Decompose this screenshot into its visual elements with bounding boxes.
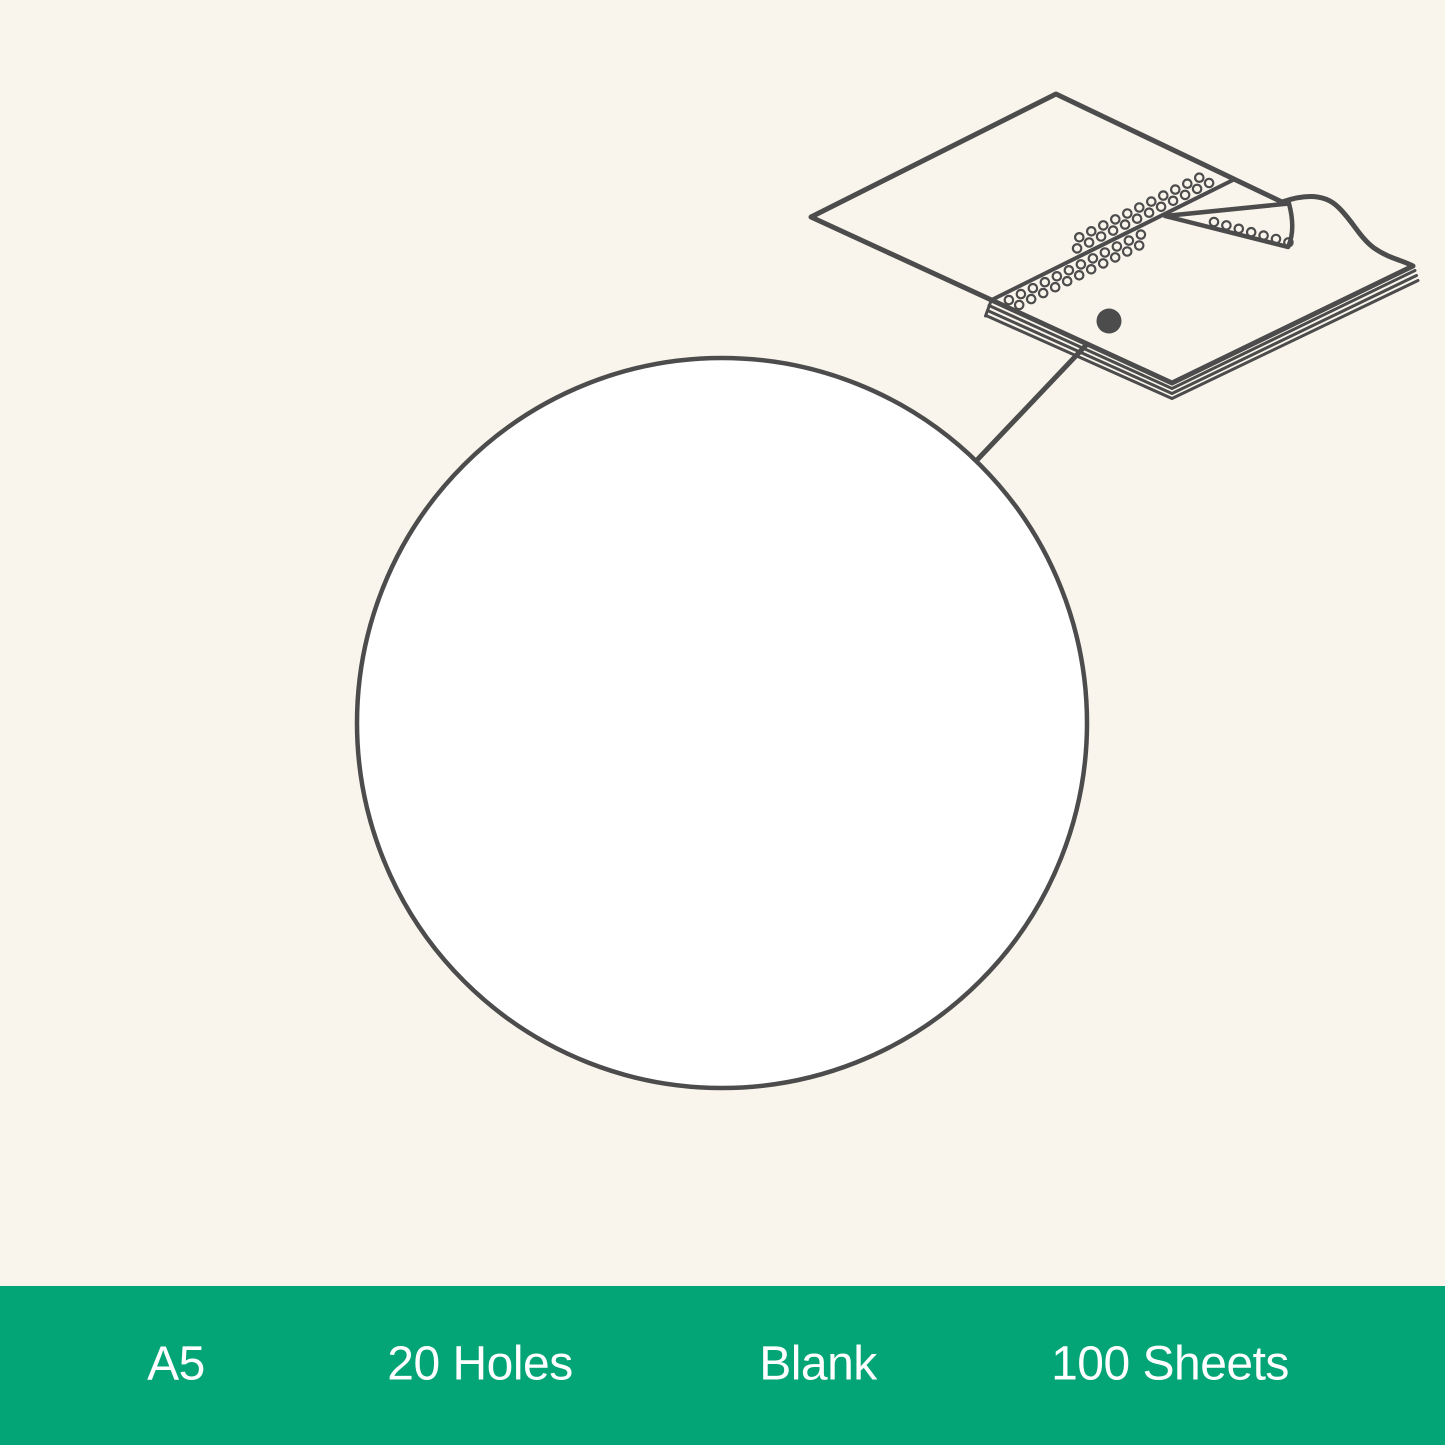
notebook-line-art xyxy=(811,94,1418,399)
callout-dot xyxy=(1097,309,1122,334)
notebook-callout-illustration xyxy=(0,0,1445,1445)
stack-step xyxy=(986,301,992,316)
spec-label-sheets: 100 Sheets xyxy=(1051,1336,1289,1391)
spec-label-holes: 20 Holes xyxy=(387,1336,572,1391)
magnifier-circle xyxy=(357,358,1087,1088)
spec-label-ruling: Blank xyxy=(759,1336,877,1391)
spec-banner: A5 20 Holes Blank 100 Sheets xyxy=(0,1286,1445,1445)
product-image-canvas: A5 20 Holes Blank 100 Sheets xyxy=(0,0,1445,1445)
spec-label-size: A5 xyxy=(147,1336,205,1391)
